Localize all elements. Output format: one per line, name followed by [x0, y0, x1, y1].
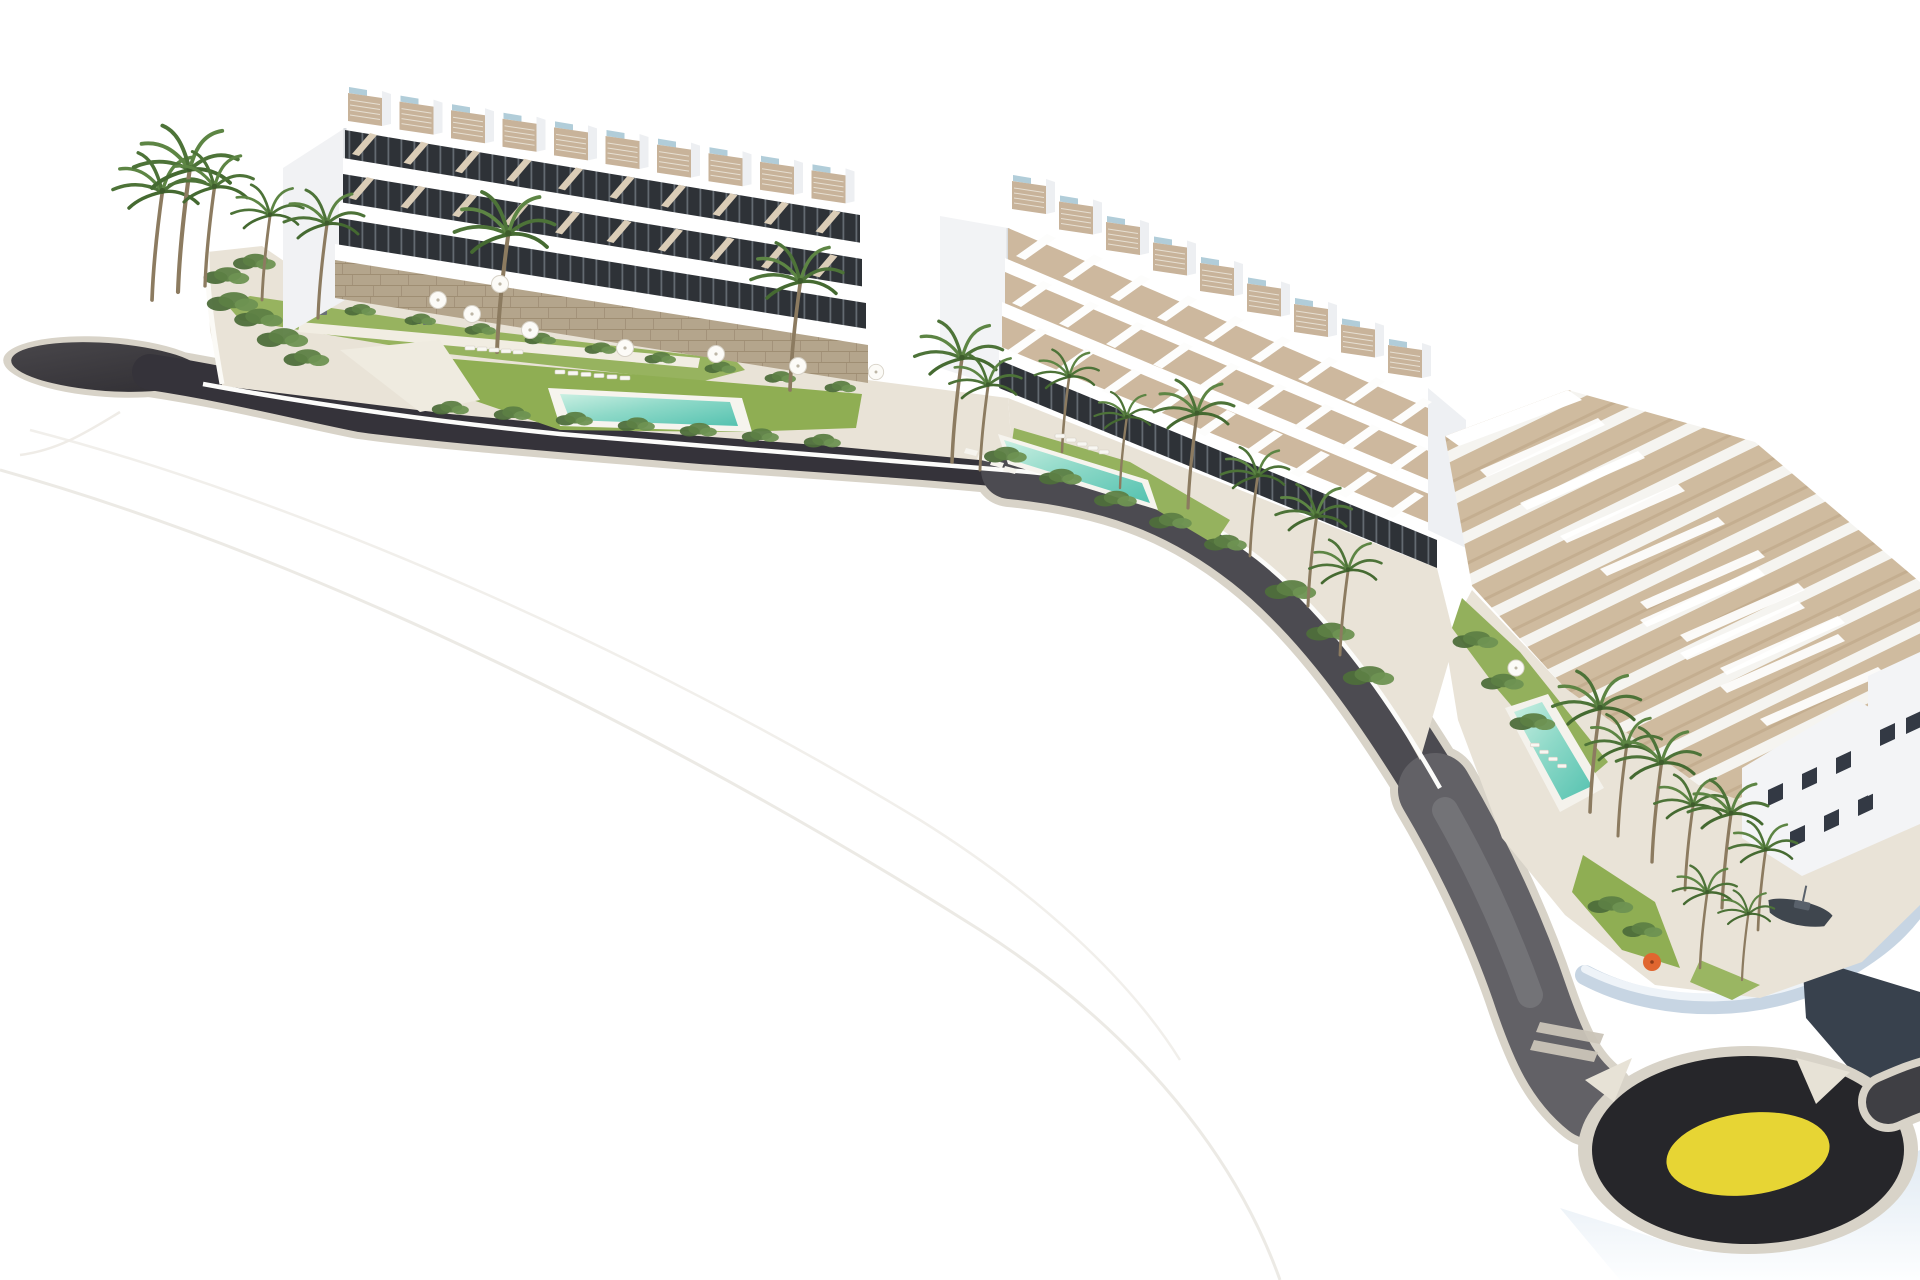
lounger-row-pool-a-item: [581, 372, 591, 376]
building-a-roof-row-item: [503, 112, 546, 152]
lounger-row-pool-c-item: [1549, 757, 1558, 761]
building-b-roof-row-item: [1106, 215, 1149, 255]
lounger-row-pool-b-item: [1077, 442, 1087, 446]
lounger-row-pool-c-item: [1540, 750, 1549, 754]
building-a-roof-row-item: [451, 103, 494, 143]
lounger-row-pool-b-item: [1088, 446, 1098, 450]
pool-lounger: [1099, 450, 1109, 454]
building-b-roof-row-item: [1012, 174, 1055, 214]
garden-umbrella: [790, 358, 807, 375]
building-a-roof-row-item: [554, 120, 597, 160]
lounger-row-lawn-a-item: [489, 348, 499, 352]
pool-lounger: [581, 372, 591, 376]
render-canvas: [0, 0, 1920, 1280]
pool-lounger: [477, 347, 487, 351]
lounger-row-pool-a-item: [620, 376, 630, 380]
orange-parasol-pole: [1650, 960, 1654, 964]
garden-umbrella: [708, 346, 725, 363]
lounger-row-lawn-a-item: [513, 350, 523, 354]
architectural-render: [0, 0, 1920, 1280]
building-a-roof-row-item: [606, 129, 649, 169]
pool-lounger: [501, 349, 511, 353]
roof-terrace-unit: [1341, 318, 1384, 358]
pool-lounger: [555, 370, 565, 374]
roof-terrace-unit: [503, 112, 546, 152]
pool-lounger: [1540, 750, 1549, 754]
roof-terrace-unit: [1200, 256, 1243, 296]
pool-lounger: [1066, 438, 1076, 442]
lounger-row-pool-c-item: [1531, 743, 1540, 747]
lounger-row-pool-b-item: [1099, 450, 1109, 454]
pool-lounger: [489, 348, 499, 352]
lounger-row-pool-c-item: [1558, 764, 1567, 768]
roof-terrace-unit: [657, 138, 700, 178]
roof-terrace-unit: [1153, 236, 1196, 276]
pool-lounger: [1088, 446, 1098, 450]
roof-terrace-unit: [1059, 195, 1102, 235]
roof-terrace-unit: [1106, 215, 1149, 255]
roof-terrace-unit: [606, 129, 649, 169]
building-b-roof-row-item: [1294, 297, 1337, 337]
roof-terrace-unit: [348, 86, 391, 126]
building-b-roof-row-item: [1153, 236, 1196, 276]
lounger-row-pool-a-item: [555, 370, 565, 374]
pool-lounger: [513, 350, 523, 354]
building-b-roof-row-item: [1059, 195, 1102, 235]
roof-terrace-unit: [451, 103, 494, 143]
roof-terrace-unit: [1012, 174, 1055, 214]
lounger-row-lawn-a-item: [501, 349, 511, 353]
garden-umbrella: [1508, 660, 1524, 676]
roof-terrace-unit: [1388, 338, 1431, 378]
roof-terrace-unit: [709, 146, 752, 186]
garden-umbrella: [617, 340, 634, 357]
pool-lounger: [1055, 434, 1065, 438]
garden-umbrella: [868, 364, 883, 379]
pool-lounger: [1531, 743, 1540, 747]
roof-terrace-unit: [812, 163, 855, 203]
garden-umbrella: [492, 276, 509, 293]
pool-lounger: [1549, 757, 1558, 761]
roof-terrace-unit: [400, 95, 443, 135]
lounger-row-pool-a-item: [594, 374, 604, 378]
garden-umbrella: [430, 292, 447, 309]
garden-umbrella: [464, 306, 481, 323]
pool-lounger: [465, 346, 475, 350]
building-a-roof-row-item: [812, 163, 855, 203]
lounger-row-pool-b-item: [1066, 438, 1076, 442]
lounger-row-pool-b-item: [1055, 434, 1065, 438]
lounger-row-lawn-a-item: [477, 347, 487, 351]
building-a-roof-row-item: [657, 138, 700, 178]
roof-terrace-unit: [760, 155, 803, 195]
lounger-row-pool-a-item: [607, 375, 617, 379]
building-a-roof-row-item: [709, 146, 752, 186]
roof-terrace-unit: [1247, 277, 1290, 317]
building-a-roof-row-item: [760, 155, 803, 195]
garden-umbrella: [522, 322, 539, 339]
pool-lounger: [1558, 764, 1567, 768]
pool-lounger: [594, 374, 604, 378]
building-b-roof-row-item: [1388, 338, 1431, 378]
lounger-row-lawn-a-item: [465, 346, 475, 350]
building-b-roof-row-item: [1200, 256, 1243, 296]
building-a-roof-row-item: [400, 95, 443, 135]
building-a-roof-row-item: [348, 86, 391, 126]
building-b-roof-row-item: [1341, 318, 1384, 358]
road-exit-asphalt: [1888, 1086, 1920, 1102]
pool-lounger: [1077, 442, 1087, 446]
building-b-roof-row-item: [1247, 277, 1290, 317]
lounger-row-pool-a-item: [568, 371, 578, 375]
roof-terrace-unit: [554, 120, 597, 160]
pool-lounger: [607, 375, 617, 379]
pool-lounger: [620, 376, 630, 380]
roof-terrace-unit: [1294, 297, 1337, 337]
pool-lounger: [568, 371, 578, 375]
